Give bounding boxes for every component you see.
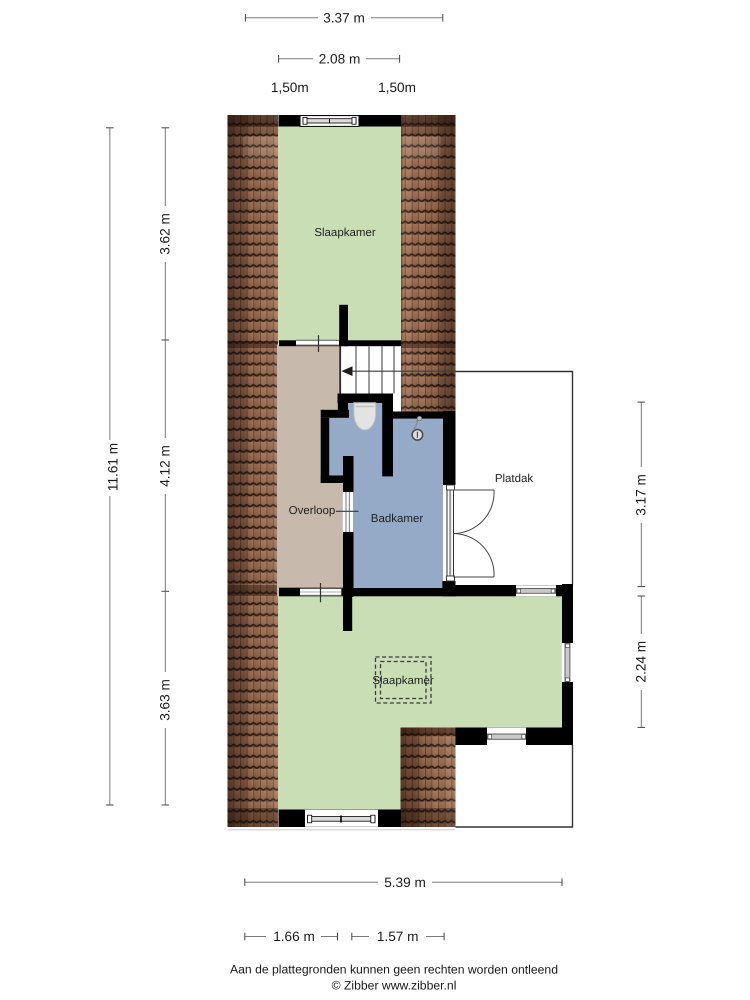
- svg-text:4.12 m: 4.12 m: [157, 445, 172, 487]
- svg-text:3.17 m: 3.17 m: [633, 474, 648, 516]
- svg-text:1.66 m: 1.66 m: [273, 929, 315, 944]
- svg-text:2.24 m: 2.24 m: [633, 641, 648, 683]
- svg-text:Slaapkamer: Slaapkamer: [314, 227, 376, 239]
- svg-text:1,50m: 1,50m: [378, 80, 416, 95]
- svg-text:Badkamer: Badkamer: [371, 513, 424, 525]
- svg-text:Overloop: Overloop: [289, 505, 336, 517]
- svg-text:© Zibber www.zibber.nl: © Zibber www.zibber.nl: [332, 978, 457, 992]
- svg-text:Aan de plattegronden kunnen ge: Aan de plattegronden kunnen geen rechten…: [230, 962, 558, 976]
- svg-text:Platdak: Platdak: [495, 473, 534, 485]
- svg-text:3.37 m: 3.37 m: [323, 10, 365, 25]
- svg-text:3.63 m: 3.63 m: [157, 679, 172, 721]
- svg-text:1,50m: 1,50m: [271, 80, 309, 95]
- svg-text:3.62 m: 3.62 m: [157, 213, 172, 255]
- svg-text:11.61 m: 11.61 m: [105, 443, 120, 491]
- svg-text:5.39 m: 5.39 m: [384, 875, 426, 890]
- svg-text:1.57 m: 1.57 m: [377, 929, 419, 944]
- svg-text:Slaapkamer: Slaapkamer: [372, 675, 434, 687]
- svg-text:2.08 m: 2.08 m: [319, 51, 361, 66]
